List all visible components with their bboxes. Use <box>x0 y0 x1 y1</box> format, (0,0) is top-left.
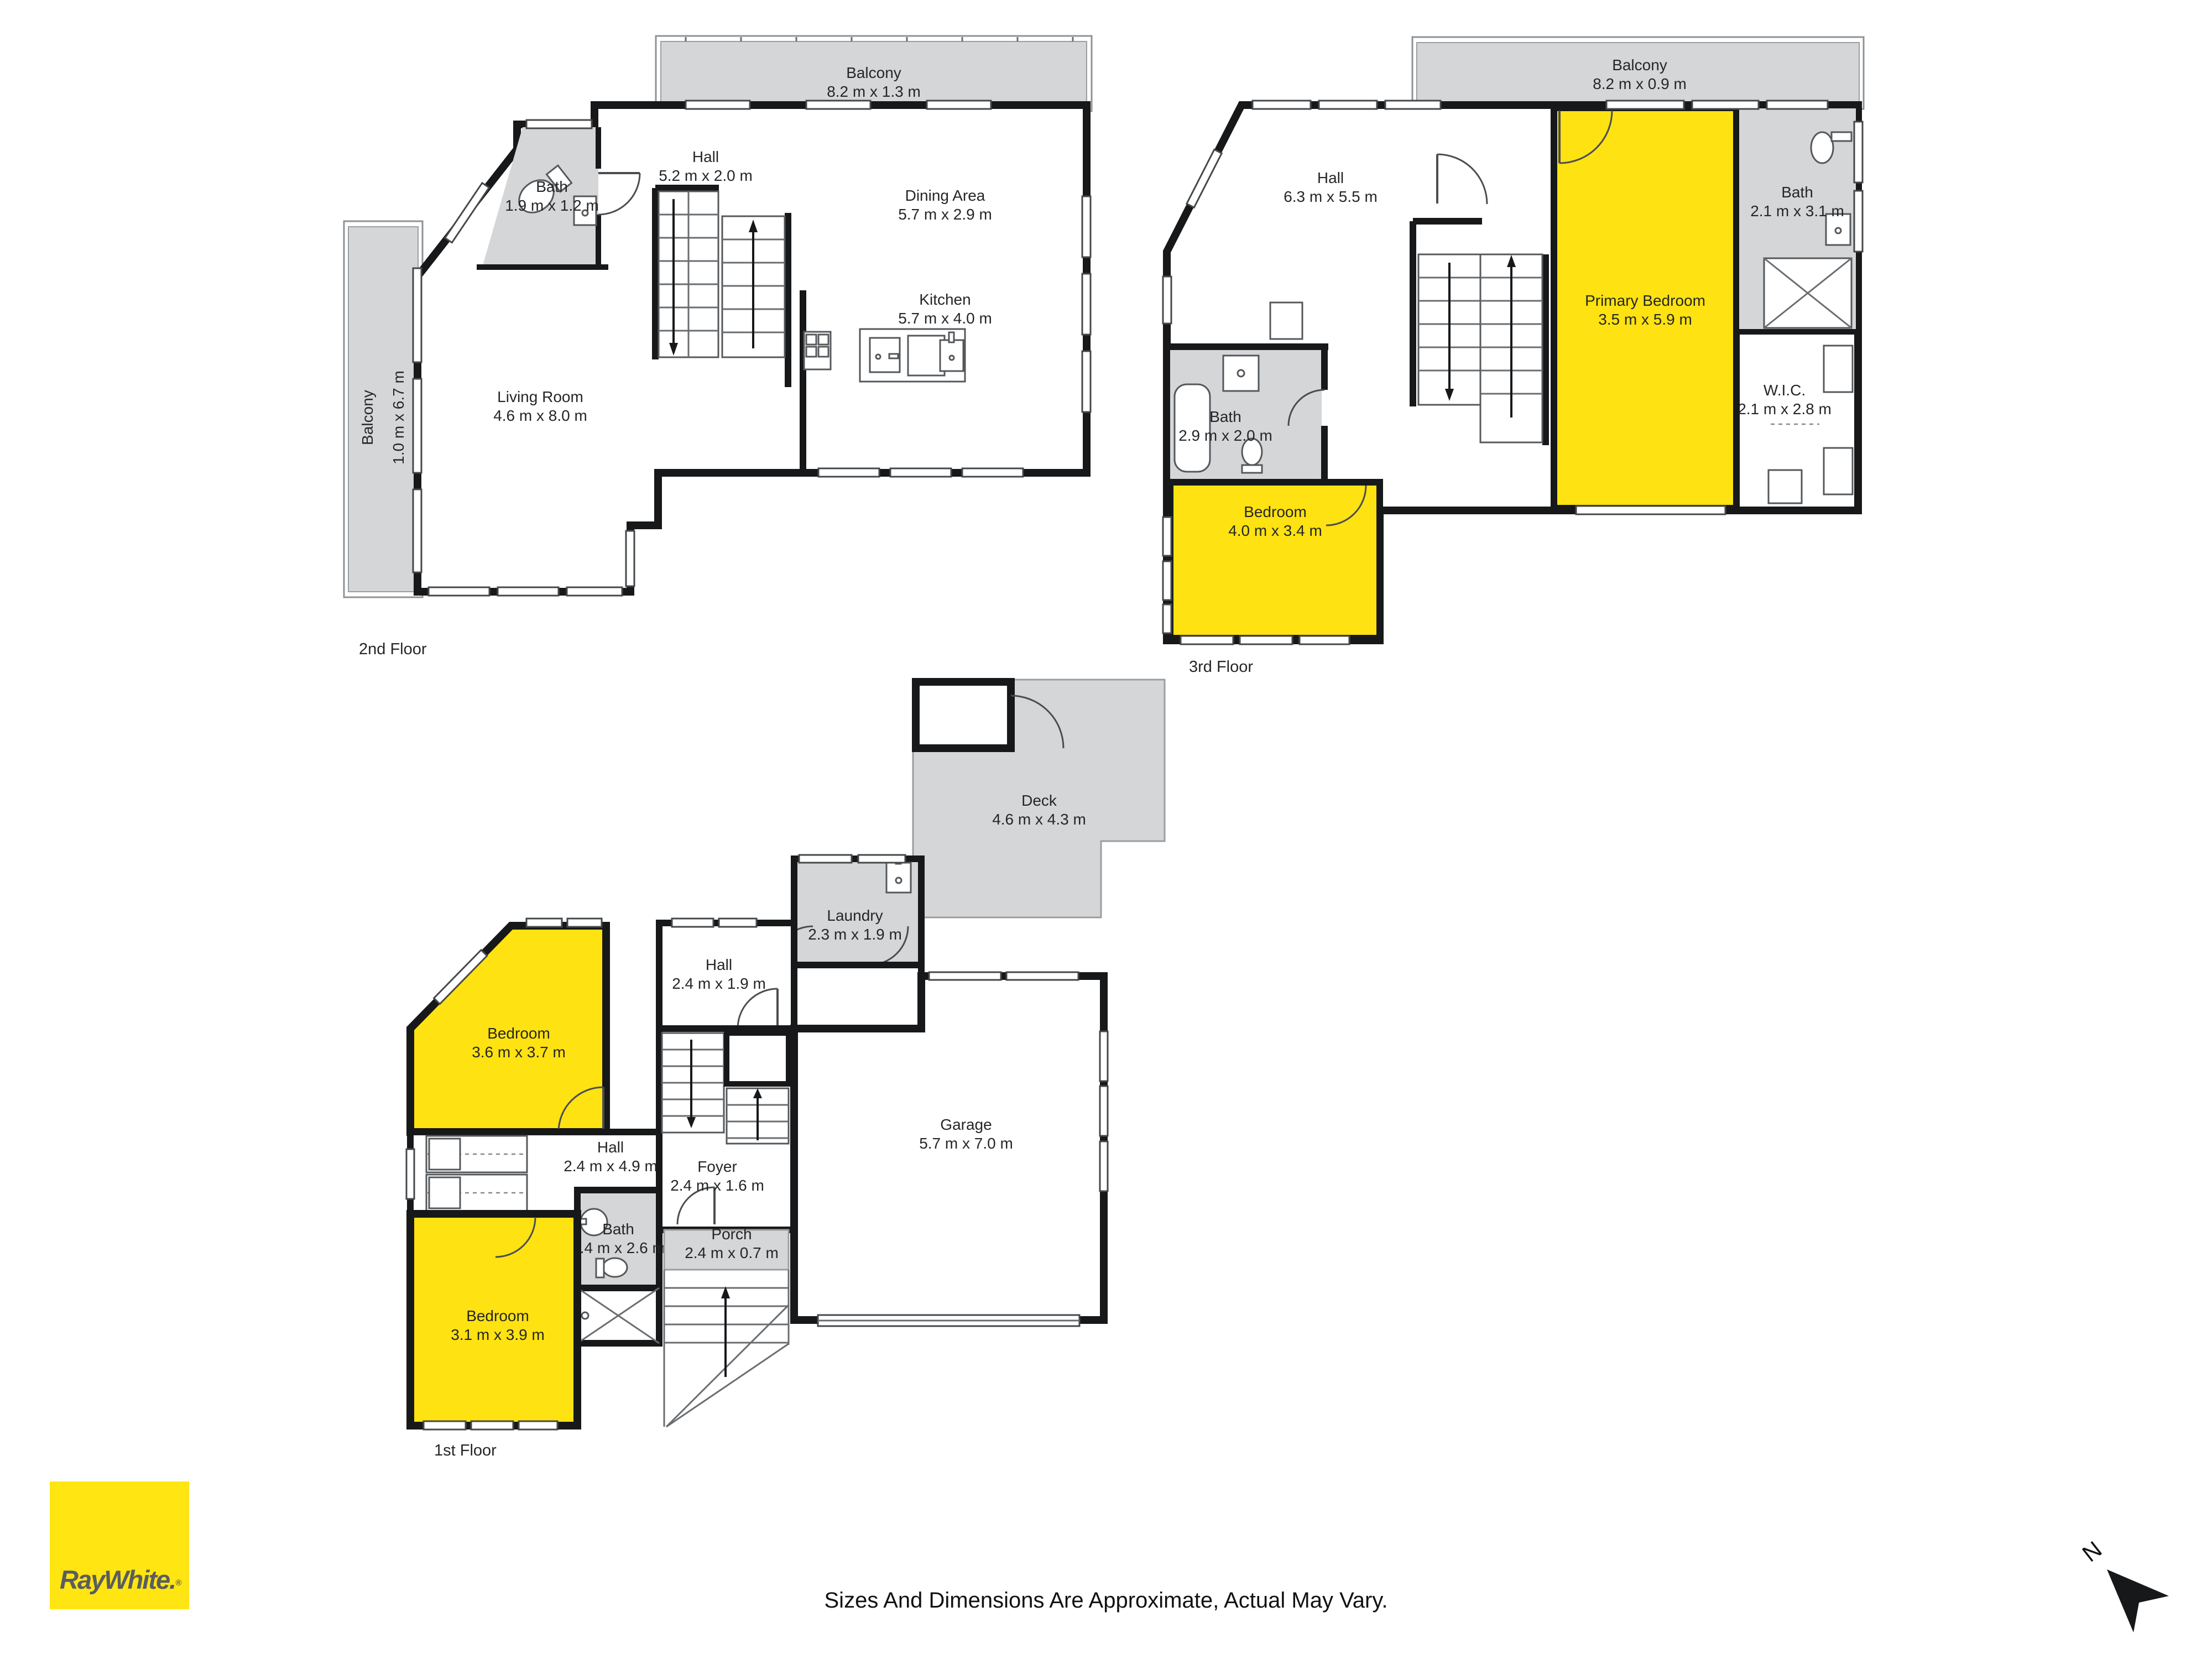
room-label: Bath <box>1781 184 1813 201</box>
room-label: Bedroom <box>487 1025 550 1042</box>
room-label: Bath <box>536 178 568 195</box>
room-dims: 2.4 m x 4.9 m <box>564 1157 658 1175</box>
deck-opening <box>916 682 1011 748</box>
room-dims: 2.4 m x 1.9 m <box>672 975 766 992</box>
room-label: Balcony <box>359 390 376 445</box>
toilet-icon <box>596 1258 627 1277</box>
registered-mark: ® <box>175 1578 181 1588</box>
room-label: Hall <box>1317 169 1344 186</box>
room-dims: 1.4 m x 2.6 m <box>571 1239 665 1256</box>
shower-icon <box>577 1288 659 1343</box>
room-label: Primary Bedroom <box>1585 292 1705 309</box>
room-dims: 4.0 m x 3.4 m <box>1228 522 1322 539</box>
room-dims: 1.0 m x 6.7 m <box>390 371 407 465</box>
room-label: Hall <box>597 1139 624 1156</box>
deck: Deck 4.6 m x 4.3 m <box>913 680 1165 917</box>
bathroom-lower: Bath 2.9 m x 2.0 m <box>1167 347 1328 484</box>
room-dims: 2.1 m x 2.8 m <box>1738 400 1832 418</box>
room-label: Hall <box>692 148 719 165</box>
north-label: N <box>2077 1536 2106 1567</box>
room-dims: 2.4 m x 1.6 m <box>670 1177 764 1194</box>
kitchen-island <box>860 329 965 382</box>
stove-icon <box>804 332 831 369</box>
room-dims: 6.3 m x 5.5 m <box>1284 188 1378 205</box>
room-label: Living Room <box>497 388 583 405</box>
room-label: Balcony <box>1612 56 1667 74</box>
disclaimer-text: Sizes And Dimensions Are Approximate, Ac… <box>0 1588 2212 1613</box>
room-dims: 3.5 m x 5.9 m <box>1598 311 1692 328</box>
room-label: Bath <box>1209 408 1241 425</box>
floor-title: 1st Floor <box>434 1442 497 1459</box>
garage: Garage 5.7 m x 7.0 m <box>794 976 1104 1326</box>
entry-stairs <box>664 1270 789 1427</box>
bathroom: Bath 1.4 m x 2.6 m <box>571 1190 665 1343</box>
balcony-railing-ticks <box>686 37 1073 41</box>
room-label: Dining Area <box>905 187 985 204</box>
sink-icon <box>1223 356 1259 391</box>
foyer-stairs: Foyer 2.4 m x 1.6 m <box>659 1029 794 1230</box>
primary-bedroom: Primary Bedroom 3.5 m x 5.9 m <box>1554 108 1736 508</box>
room-label: Deck <box>1021 792 1057 809</box>
floor-plan-3rd: Balcony 8.2 m x 0.9 m Primary Bedroom 3.… <box>1134 30 1919 694</box>
room-dims: 5.7 m x 7.0 m <box>919 1135 1013 1152</box>
floor-plan-1st: Deck 4.6 m x 4.3 m Laundry 2.3 m x 1.9 m… <box>332 653 1194 1493</box>
room-dims: 3.6 m x 3.7 m <box>472 1044 566 1061</box>
bathroom-upper: Bath 2.1 m x 3.1 m <box>1736 108 1858 332</box>
bedroom-upper: Bedroom 3.6 m x 3.7 m <box>410 926 606 1132</box>
porch: Porch 2.4 m x 0.7 m <box>664 1225 789 1270</box>
bedroom: Bedroom 4.0 m x 3.4 m <box>1170 482 1380 638</box>
shower-icon <box>1764 258 1851 328</box>
room-label: Bedroom <box>466 1307 529 1324</box>
room-dims: 5.7 m x 2.9 m <box>898 206 992 223</box>
room-dims: 4.6 m x 4.3 m <box>992 811 1086 828</box>
vestibule <box>794 965 921 1029</box>
room-label: Laundry <box>827 907 883 924</box>
room-label: Bath <box>602 1220 634 1238</box>
room-dims: 3.1 m x 3.9 m <box>451 1326 545 1343</box>
room-dims: 5.2 m x 2.0 m <box>659 167 753 184</box>
staircase <box>655 188 788 387</box>
north-arrow-icon: N <box>2065 1529 2193 1648</box>
room-dims: 1.9 m x 1.2 m <box>505 197 599 214</box>
room-label: Garage <box>940 1116 992 1133</box>
room-dims: 4.6 m x 8.0 m <box>493 407 587 424</box>
room-label: W.I.C. <box>1764 382 1806 399</box>
balcony: Balcony 8.2 m x 0.9 m <box>1412 37 1864 109</box>
room-dims: 2.4 m x 0.7 m <box>685 1244 779 1261</box>
room-label: Bedroom <box>1244 503 1307 520</box>
room-label: Hall <box>706 956 732 973</box>
bedroom-lower: Bedroom 3.1 m x 3.9 m <box>410 1214 577 1426</box>
room-dims: 8.2 m x 1.3 m <box>827 83 921 100</box>
balcony-left: Balcony 1.0 m x 6.7 m <box>344 221 422 597</box>
floor-plan-2nd: Balcony 8.2 m x 1.3 m Balcony 1.0 m x 6.… <box>332 30 1117 672</box>
room-label: Kitchen <box>919 291 971 308</box>
room-dims: 2.1 m x 3.1 m <box>1750 202 1844 220</box>
room-label: Foyer <box>697 1158 737 1175</box>
room-label: Balcony <box>846 64 901 81</box>
room-label: Porch <box>711 1225 752 1243</box>
hall-table <box>1270 302 1302 339</box>
floorplan-sheet: Balcony 8.2 m x 1.3 m Balcony 1.0 m x 6.… <box>0 0 2212 1659</box>
room-dims: 2.3 m x 1.9 m <box>808 926 902 943</box>
room-dims: 8.2 m x 0.9 m <box>1593 75 1687 92</box>
floor-title: 3rd Floor <box>1189 658 1253 676</box>
north-arrowhead <box>2107 1569 2169 1632</box>
room-dims: 2.9 m x 2.0 m <box>1178 427 1272 444</box>
room-dims: 5.7 m x 4.0 m <box>898 310 992 327</box>
hall-upper: Hall 2.4 m x 1.9 m <box>659 923 794 1029</box>
